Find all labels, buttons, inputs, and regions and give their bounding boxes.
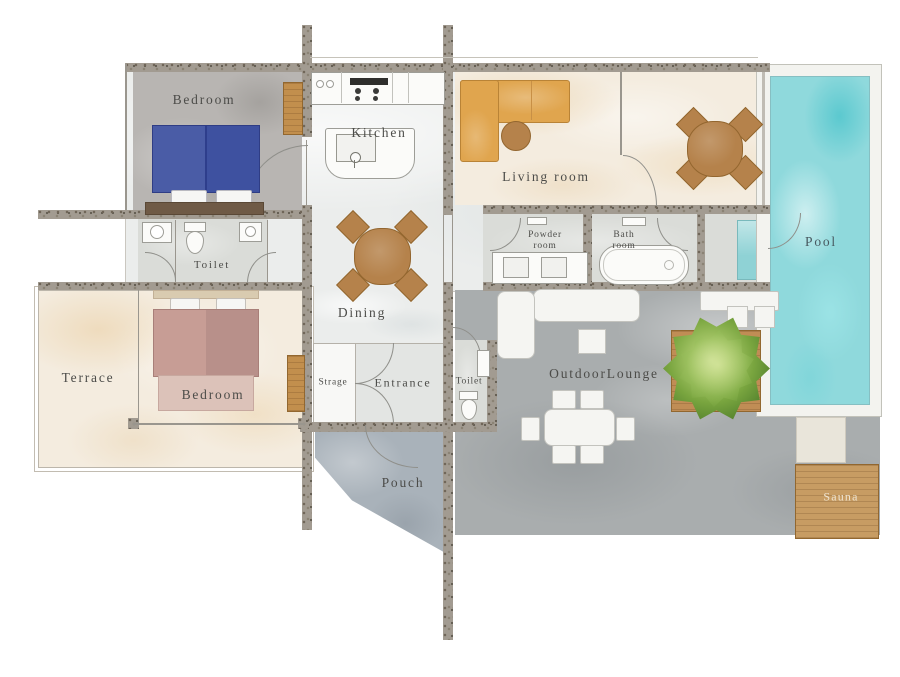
- vanity-sink-icon: [541, 257, 567, 278]
- powder-shelf: [527, 217, 547, 225]
- room-label-bedroom-upper: Bedroom: [173, 92, 236, 108]
- wardrobe-lower: [287, 355, 305, 412]
- room-label-entrance: Entrance: [374, 376, 431, 391]
- room-label-pool: Pool: [805, 234, 837, 250]
- burner-icon: [373, 96, 378, 101]
- wall-bedroom-lower-left: [138, 290, 139, 423]
- sauna-step: [796, 417, 846, 463]
- bed-upper-headboard: [145, 202, 264, 215]
- round-table-east: [687, 121, 743, 177]
- bath-drain-icon: [664, 260, 674, 270]
- wall-powder-top: [483, 205, 770, 214]
- room-label-outdoor-lounge: OutdoorLounge: [549, 366, 659, 382]
- opening-line-left: [443, 215, 444, 282]
- wall-column-b-upper: [443, 25, 453, 215]
- floor-plan: Bedroom Kitchen Living room Pool Toilet …: [0, 0, 900, 677]
- faucet-stem: [354, 160, 355, 168]
- powder-line1: Powder: [528, 230, 562, 241]
- room-label-kitchen: Kitchen: [351, 125, 406, 141]
- burner-icon: [355, 96, 360, 101]
- outdoor-chair: [552, 445, 576, 464]
- room-label-storage: Strage: [318, 378, 347, 389]
- room-label-bath: Bath room: [612, 230, 635, 252]
- slider-track: [133, 423, 305, 425]
- side-table: [578, 329, 606, 354]
- wardrobe-upper: [283, 82, 303, 135]
- wall-living-divider: [620, 72, 622, 155]
- bath-line2: room: [612, 241, 635, 252]
- wall-toilet-upper-bottom: [38, 282, 302, 290]
- wall-bedroom-upper-left: [125, 64, 127, 210]
- room-label-living: Living room: [502, 169, 590, 185]
- room-label-terrace: Terrace: [62, 370, 115, 386]
- wall-column-b-lower: [443, 282, 453, 640]
- bed-upper-duvet: [152, 125, 260, 193]
- sink-basin-icon: [245, 226, 256, 237]
- vanity-sink-icon: [503, 257, 529, 278]
- room-label-toilet-lower: Toilet: [456, 377, 483, 388]
- stool: [754, 306, 775, 328]
- coffee-table: [501, 121, 531, 151]
- eave-line: [310, 57, 758, 58]
- room-label-dining: Dining: [338, 305, 386, 321]
- bath-line1: Bath: [612, 230, 635, 241]
- sofa-cushion-line: [531, 81, 532, 120]
- sofa-vertical: [460, 80, 499, 162]
- opening-line-right: [452, 215, 453, 282]
- room-label-powder: Powder room: [528, 230, 562, 252]
- stove-icon: [350, 78, 388, 85]
- room-label-sauna: Sauna: [823, 490, 858, 505]
- toilet-upper-divider-1: [175, 220, 176, 282]
- outdoor-chair: [521, 417, 540, 441]
- hob-icon: [326, 80, 334, 88]
- burner-icon: [373, 88, 379, 94]
- wall-east: [762, 72, 765, 205]
- outdoor-chair: [580, 390, 604, 409]
- toilet-lower-sink: [477, 350, 490, 377]
- powder-line2: room: [528, 241, 562, 252]
- room-label-toilet-upper: Toilet: [194, 259, 230, 271]
- outdoor-chair: [552, 390, 576, 409]
- room-label-bedroom-lower: Bedroom: [182, 387, 245, 403]
- faucet-icon: [350, 152, 361, 163]
- daybed-vertical: [497, 291, 535, 359]
- bed-lower-duvet: [153, 309, 259, 377]
- washer-drum-icon: [150, 225, 164, 239]
- outdoor-chair: [580, 445, 604, 464]
- daybed-horizontal: [533, 289, 640, 322]
- burner-icon: [355, 88, 361, 94]
- outdoor-table: [544, 409, 615, 446]
- outdoor-chair: [616, 417, 635, 441]
- counter-divider-2: [392, 72, 393, 103]
- counter-divider-3: [408, 72, 409, 103]
- dining-table: [354, 228, 411, 285]
- wall-bath-shower-divider: [697, 214, 705, 282]
- bath-shelf: [622, 217, 646, 226]
- room-label-porch: Pouch: [382, 475, 425, 491]
- hob-icon: [316, 80, 324, 88]
- counter-divider-1: [341, 72, 342, 103]
